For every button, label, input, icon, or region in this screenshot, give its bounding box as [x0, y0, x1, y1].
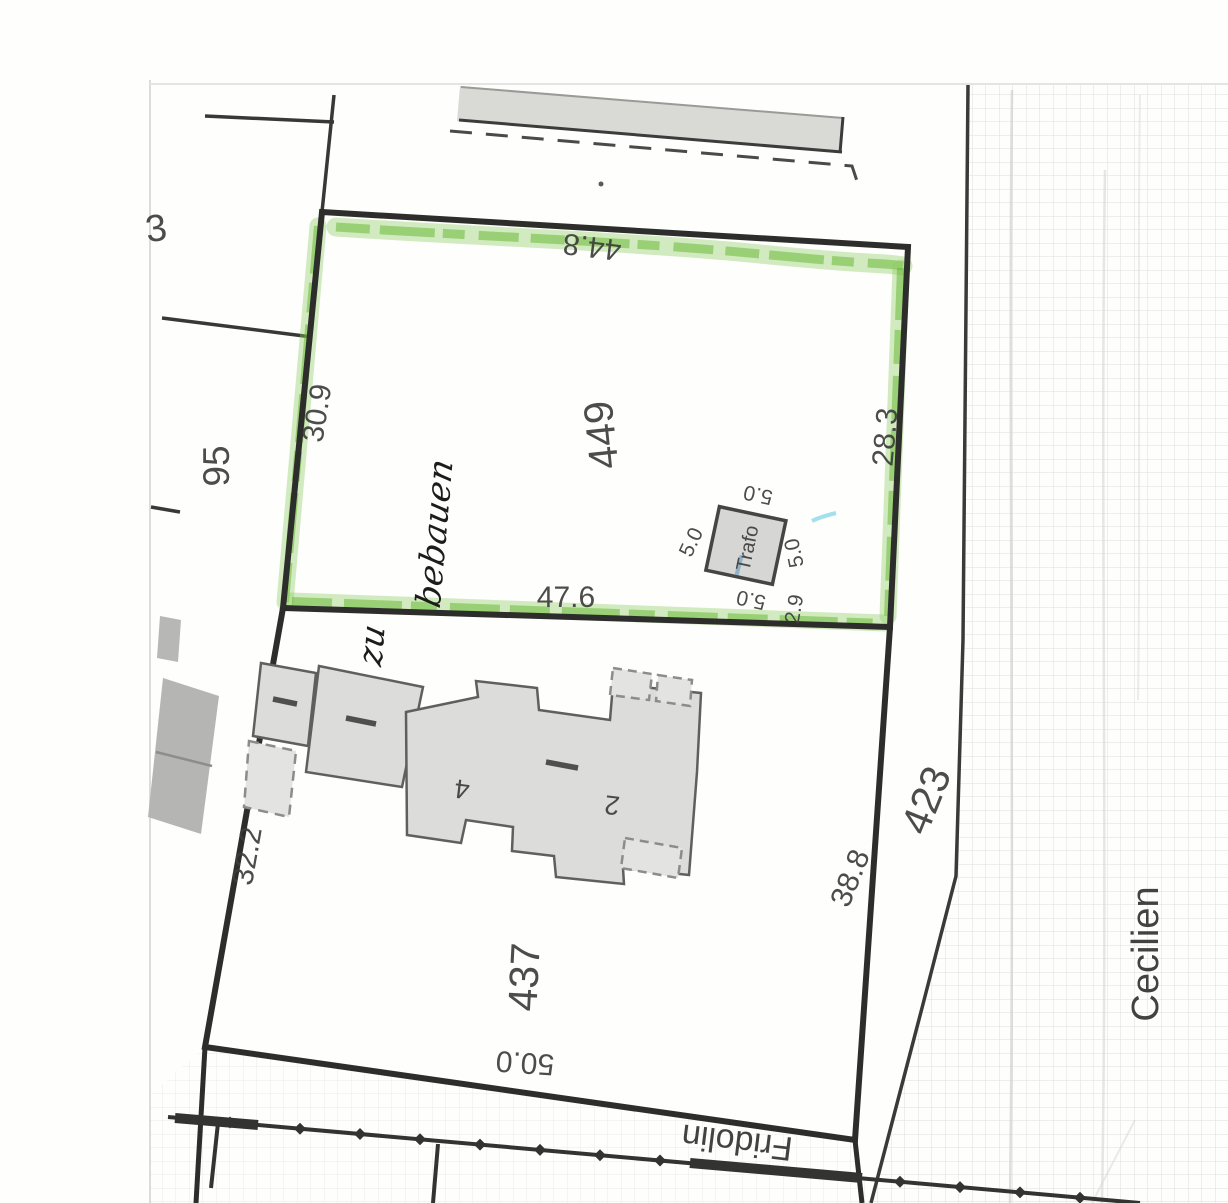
building-addition-dashed-2 — [656, 675, 692, 706]
map-canvas: 449 437 95 423 3 44.8 30.9 28.3 47.6 32.… — [0, 0, 1228, 1203]
parcel-423-number: 423 — [892, 760, 960, 841]
scan-streak-1 — [1010, 90, 1012, 1203]
west-neighbour-building — [148, 616, 219, 834]
west-building-small — [157, 616, 181, 662]
north-building-footprint — [457, 86, 843, 153]
dim-449-north: 44.8 — [561, 227, 623, 267]
handwritten-annotation-word2: bebauen — [409, 455, 461, 611]
parcel-partial-number: 3 — [143, 207, 170, 252]
dim-449-south: 47.6 — [537, 581, 595, 614]
cadastral-map-scan: 449 437 95 423 3 44.8 30.9 28.3 47.6 32.… — [0, 0, 1228, 1203]
trafo-dim-left: 5.0 — [675, 524, 708, 560]
ink-speck — [599, 182, 604, 187]
west-building-large — [148, 678, 219, 834]
cyan-pen-mark — [812, 513, 836, 521]
building-a — [253, 663, 316, 746]
parcel-449-number: 449 — [575, 399, 628, 472]
building-addition-dashed-1 — [610, 668, 652, 700]
trafo-dim-right: 5.0 — [780, 536, 809, 569]
scan-streak-3 — [1138, 95, 1140, 700]
boundary-connector-vertical — [322, 95, 334, 212]
parcel-437-number: 437 — [499, 942, 549, 1013]
dim-437-west: 32.2 — [226, 824, 269, 887]
grid-texture-right — [868, 85, 1228, 1203]
handwritten-annotation-word1: zu — [351, 621, 394, 671]
boundary-connector-horizontal — [205, 116, 334, 122]
street-name-cecilien: Cecilien — [1125, 886, 1167, 1021]
dim-437-south: 50.0 — [495, 1044, 556, 1081]
dim-449-east: 28.3 — [867, 407, 905, 468]
parcel-95-north-boundary — [162, 318, 312, 337]
trafo-dim-bottom: 5.0 — [734, 585, 767, 614]
building-b-dashed — [244, 741, 296, 817]
north-building — [450, 86, 857, 181]
parcel-95-tick — [151, 507, 180, 512]
parcel-95-number: 95 — [196, 445, 237, 486]
building-cluster-437 — [244, 663, 701, 884]
trafo-dim-top: 5.0 — [741, 480, 774, 509]
